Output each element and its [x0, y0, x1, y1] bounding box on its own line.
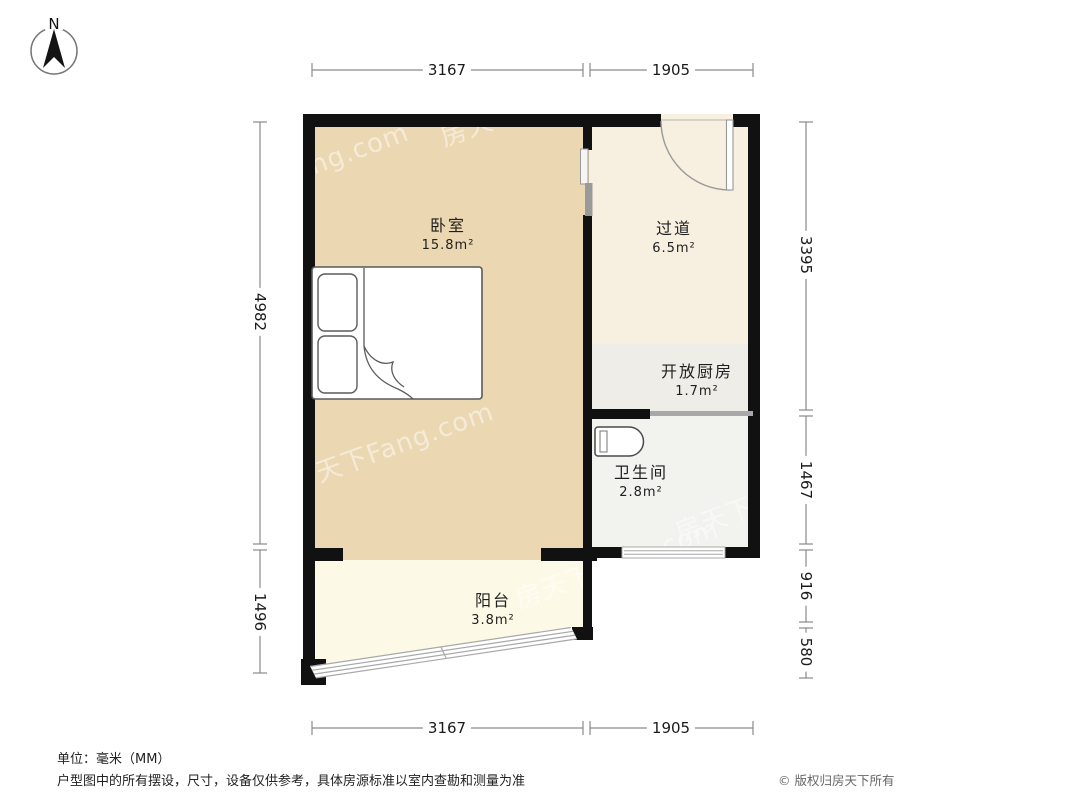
wall-top-left	[303, 114, 661, 127]
floor-plan-page: 房天下Fang.com 房天下Fang.com 房天下Fang.com 房天下F…	[0, 0, 1066, 800]
sliding-panel-inner	[585, 183, 593, 216]
pillow	[318, 274, 357, 331]
pillow	[318, 336, 357, 393]
disclaimer-text: 户型图中的所有摆设，尺寸，设备仅供参考，具体房源标准以室内查勘和测量为准	[57, 770, 525, 789]
floor-plan-canvas: 房天下Fang.com 房天下Fang.com 房天下Fang.com 房天下F…	[0, 0, 1066, 800]
wall-bathroom-bottom-right	[725, 547, 760, 558]
dim-label-top-1: 3167	[423, 61, 471, 79]
dim-label-right-1: 3395	[797, 231, 815, 279]
wall-right	[748, 114, 760, 558]
wall-middle	[583, 215, 592, 627]
dim-label-left-1: 4982	[251, 288, 269, 336]
wall-bedroom-bottom-left	[303, 548, 343, 561]
wall-middle-top	[583, 114, 592, 150]
wall-kitchen-divider	[583, 409, 650, 419]
bedroom-balcony-opening	[343, 548, 541, 561]
unit-note: 单位：毫米（MM）	[57, 748, 170, 767]
dim-label-right-2: 1467	[797, 456, 815, 504]
compass-north-label: N	[48, 15, 59, 33]
dim-label-right-3: 916	[797, 567, 815, 606]
dim-label-top-2: 1905	[647, 61, 695, 79]
toilet-icon	[595, 427, 644, 456]
kitchen-counter-line	[650, 411, 753, 416]
dim-label-right-4: 580	[797, 633, 815, 672]
bed-icon	[312, 267, 482, 399]
compass: N	[31, 15, 77, 74]
sliding-panel-outer	[581, 149, 589, 184]
bathroom-window	[622, 547, 725, 558]
door-leaf	[727, 120, 734, 190]
wall-bathroom-bottom-left	[585, 547, 622, 558]
dim-label-bottom-1: 3167	[423, 719, 471, 737]
kitchen-floor	[589, 344, 754, 413]
copyright-text: © 版权归房天下所有	[778, 770, 894, 789]
dim-label-bottom-2: 1905	[647, 719, 695, 737]
north-needle-icon	[43, 29, 65, 68]
window-frame	[622, 547, 725, 558]
dim-label-left-2: 1496	[251, 588, 269, 636]
